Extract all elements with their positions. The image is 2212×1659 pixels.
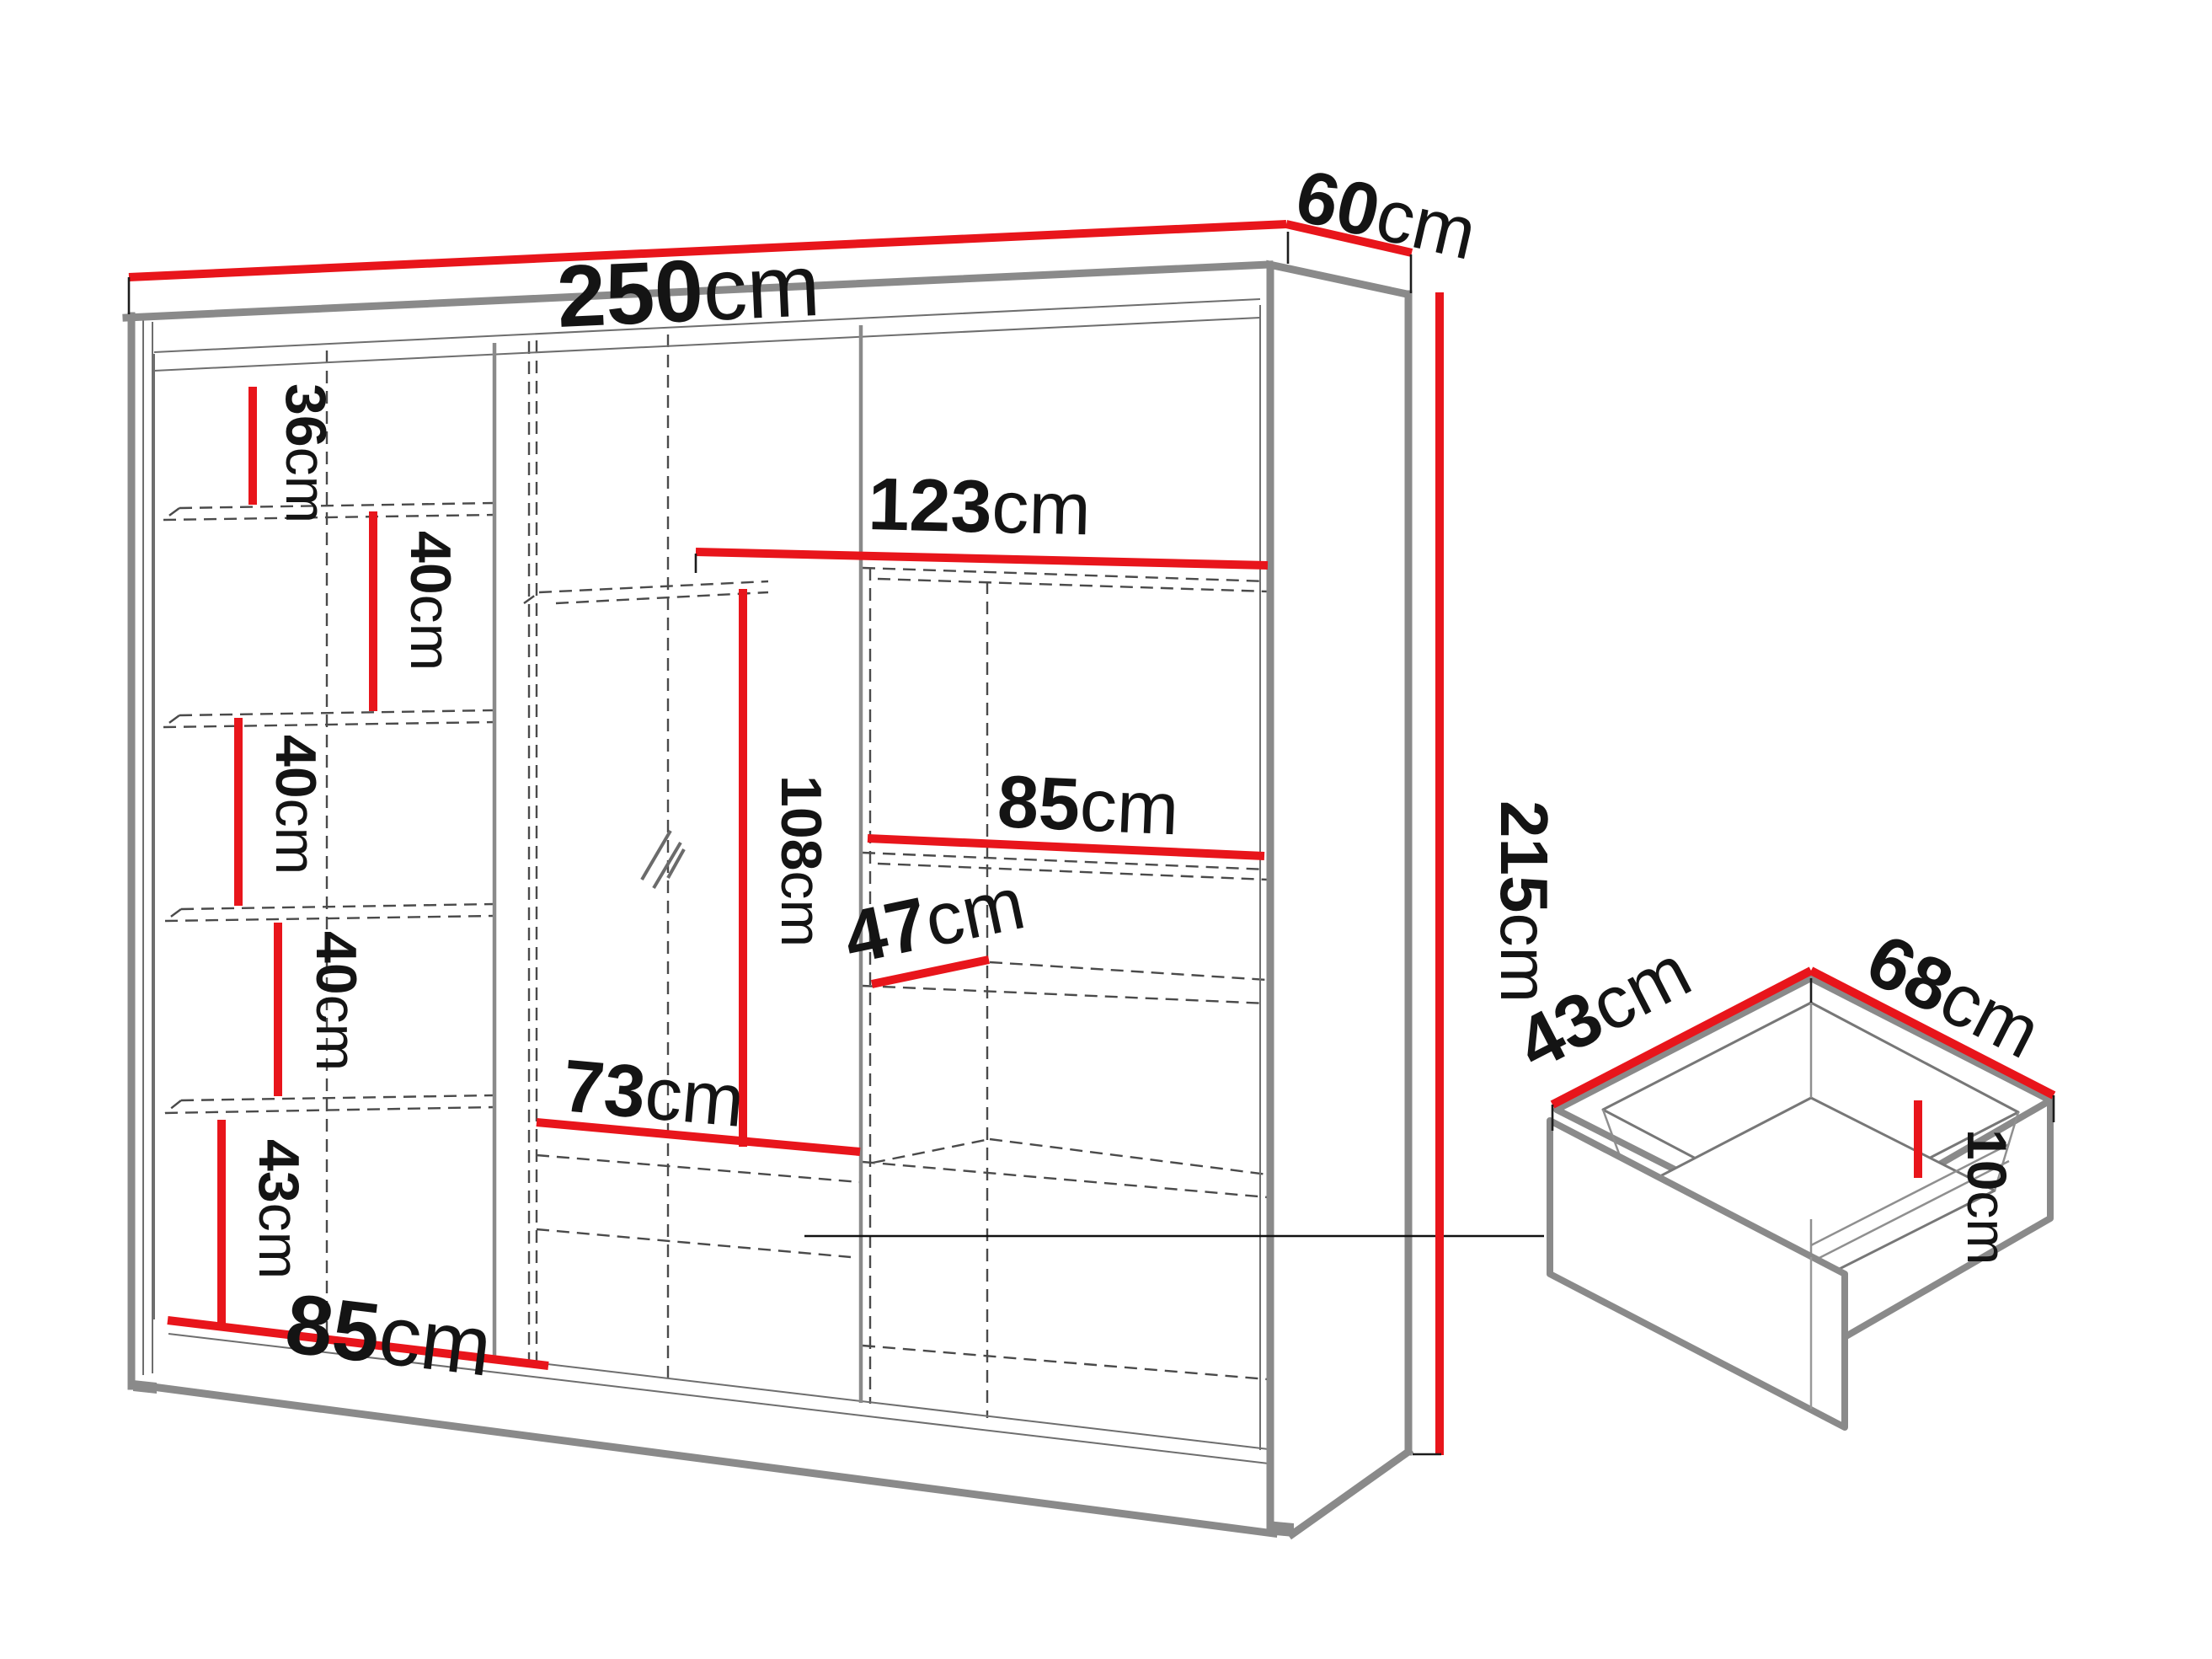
label-123: 123cm bbox=[868, 462, 1092, 550]
right-foot bbox=[1267, 1521, 1294, 1537]
label-108: 108cm bbox=[769, 775, 833, 947]
label-width-250: 250cm bbox=[555, 237, 822, 346]
label-85-right: 85cm bbox=[996, 759, 1180, 850]
label-40b: 40cm bbox=[264, 735, 328, 875]
label-40c: 40cm bbox=[304, 931, 368, 1071]
label-drawer-10: 10cm bbox=[1956, 1129, 2018, 1265]
label-36: 36cm bbox=[274, 383, 338, 523]
label-height-215: 215cm bbox=[1487, 800, 1562, 1003]
wardrobe-dimension-diagram: 250cm 60cm 215cm 36cm 40cm 40cm 40cm 43c… bbox=[0, 0, 2212, 1659]
diagram-page: 250cm 60cm 215cm 36cm 40cm 40cm 40cm 43c… bbox=[0, 0, 2212, 1659]
label-43: 43cm bbox=[247, 1139, 311, 1279]
label-73: 73cm bbox=[559, 1043, 747, 1143]
label-40a: 40cm bbox=[398, 531, 462, 671]
